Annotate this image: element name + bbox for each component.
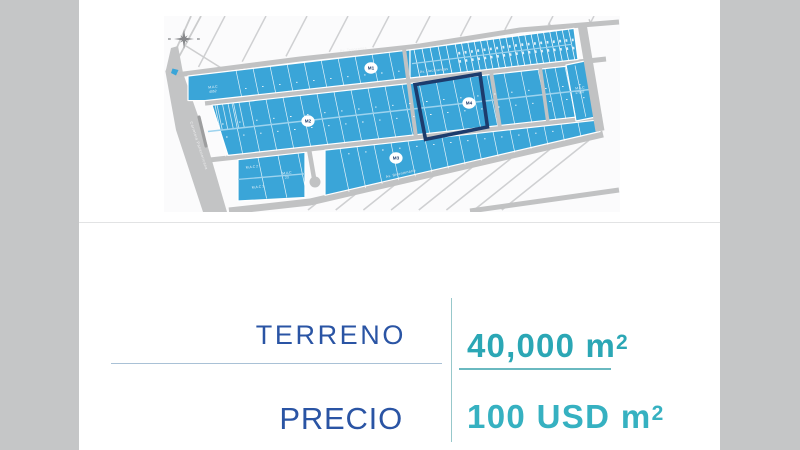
svg-text:4052: 4052 [209, 89, 217, 94]
svg-text:23: 23 [285, 175, 289, 179]
svg-text:M1: M1 [368, 66, 375, 71]
svg-text:M4: M4 [466, 101, 473, 106]
svg-text:M2: M2 [305, 119, 312, 124]
svg-text:M3: M3 [393, 156, 400, 161]
